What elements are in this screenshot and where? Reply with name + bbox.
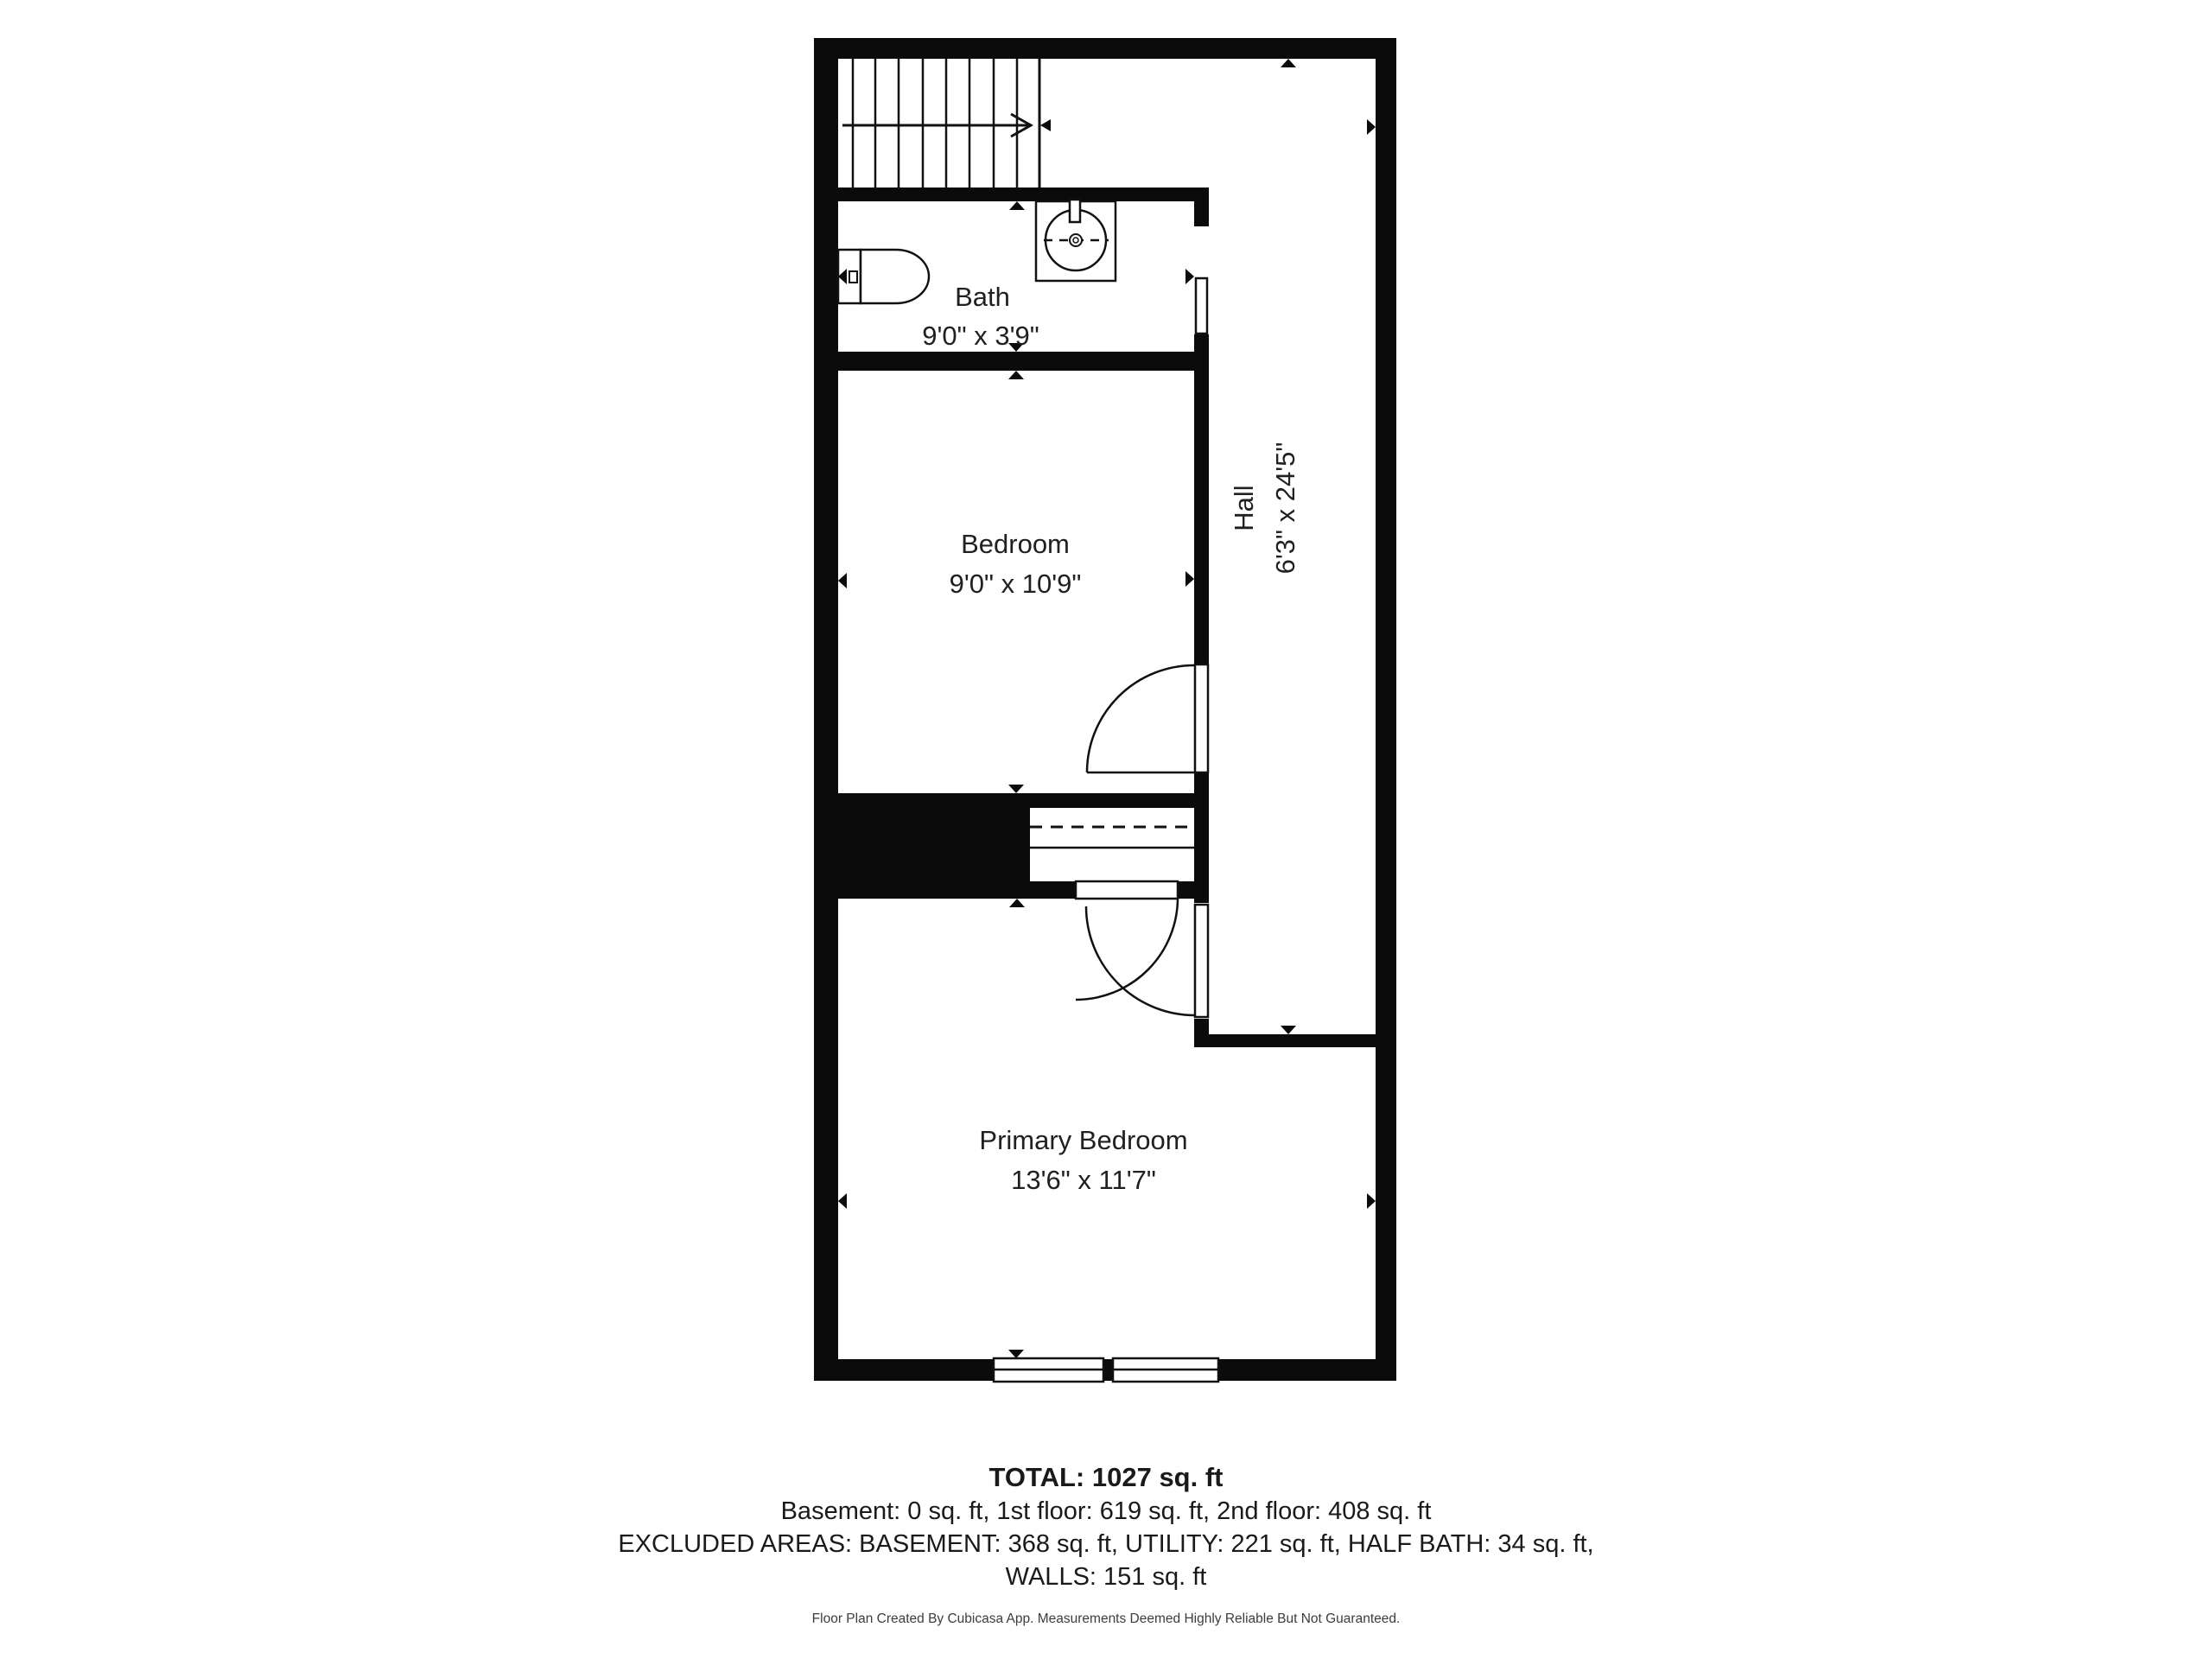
wall-outer-bottom <box>814 1359 1396 1381</box>
measure-arrow-right-icon <box>1367 119 1376 135</box>
wall-hall-bottom <box>1194 1034 1396 1047</box>
area-summary: TOTAL: 1027 sq. ft Basement: 0 sq. ft, 1… <box>618 1462 1593 1591</box>
primary-bedroom-dimensions: 13'6" x 11'7" <box>1011 1165 1156 1195</box>
bath-door-leaf <box>1196 278 1207 334</box>
excluded-areas-walls-text: WALLS: 151 sq. ft <box>1006 1563 1207 1591</box>
bedroom-door-swing-arc <box>1087 665 1194 772</box>
wall-outer-top <box>814 38 1396 59</box>
wall-outer-left <box>814 38 838 1381</box>
footer-credit-text: Floor Plan Created By Cubicasa App. Meas… <box>812 1611 1401 1626</box>
excluded-areas-text: EXCLUDED AREAS: BASEMENT: 368 sq. ft, UT… <box>618 1530 1593 1558</box>
measure-arrow-left-icon <box>838 573 847 588</box>
measure-arrow-down-icon <box>1281 1026 1296 1034</box>
wall-bath-bottom <box>814 352 1209 371</box>
hall-dimensions: 6'3" x 24'5" <box>1270 442 1300 575</box>
stair-wall-marker-icon <box>1040 119 1051 131</box>
wall-mass-block <box>814 793 1030 899</box>
measure-arrow-right-icon <box>1367 1193 1376 1209</box>
measure-arrow-left-icon <box>838 1193 847 1209</box>
measure-arrow-up-icon <box>1009 899 1025 907</box>
measure-arrow-right-icon <box>1185 269 1194 284</box>
floor-areas-text: Basement: 0 sq. ft, 1st floor: 619 sq. f… <box>781 1497 1432 1525</box>
hall-label-group: Hall 6'3" x 24'5" <box>1229 442 1300 575</box>
primary-door-swing-arc-b <box>1086 906 1195 1015</box>
measure-arrow-down-icon <box>1008 785 1024 793</box>
wall-stairs-bottom <box>814 188 1209 201</box>
closet <box>1030 827 1194 848</box>
bath-label: Bath <box>955 282 1010 312</box>
primary-door-top-panel <box>1076 881 1178 899</box>
doors <box>1076 278 1208 1017</box>
measure-arrow-down-icon <box>1008 1350 1024 1358</box>
total-area-text: TOTAL: 1027 sq. ft <box>988 1462 1223 1492</box>
measure-arrow-up-icon <box>1281 59 1296 67</box>
room-labels: Bath 9'0" x 3'9" Bedroom 9'0" x 10'9" Ha… <box>922 282 1300 1195</box>
measure-square-icon <box>849 271 857 283</box>
bedroom-dimensions: 9'0" x 10'9" <box>950 569 1082 599</box>
primary-bedroom-label: Primary Bedroom <box>979 1125 1187 1155</box>
sink-faucet-icon <box>1070 200 1080 222</box>
floor-plan-canvas: Bath 9'0" x 3'9" Bedroom 9'0" x 10'9" Ha… <box>0 0 2212 1659</box>
primary-door-side-panel <box>1195 905 1208 1017</box>
hall-label: Hall <box>1229 485 1259 531</box>
measure-arrow-up-icon <box>1009 201 1025 210</box>
bedroom-label: Bedroom <box>961 529 1070 559</box>
sink-drain-icon <box>1070 234 1082 246</box>
primary-door-swing-arc-a <box>1076 898 1178 1000</box>
toilet-bowl-icon <box>861 250 929 303</box>
staircase <box>842 59 1051 188</box>
bedroom-door-panel <box>1195 664 1208 772</box>
wall-outer-right <box>1376 38 1396 1381</box>
bath-dimensions: 9'0" x 3'9" <box>922 321 1039 351</box>
measure-arrow-up-icon <box>1008 371 1024 379</box>
measure-arrow-right-icon <box>1185 571 1194 587</box>
